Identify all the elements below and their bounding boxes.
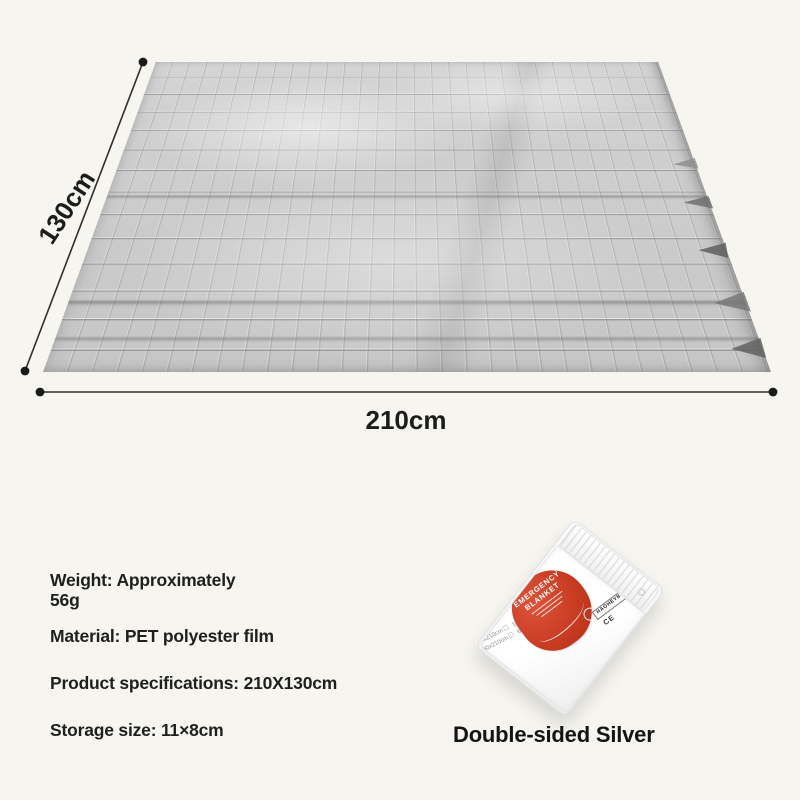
foil-blanket-photo: [43, 62, 771, 372]
spec-weight-line2: 56g: [50, 590, 235, 610]
product-image: 130cm 210cm Weight: Approximately 56g Ma…: [0, 0, 800, 800]
spec-product-size: Product specifications: 210X130cm: [50, 673, 337, 693]
spec-material: Material: PET polyester film: [50, 626, 274, 646]
spec-weight-line1: Weight: Approximately: [50, 570, 235, 590]
foil-crease: [671, 158, 698, 169]
blanket-photo-scene: [0, 0, 800, 460]
spec-weight: Weight: Approximately 56g: [50, 570, 235, 610]
foil-crease: [728, 338, 768, 358]
foil-crease: [696, 243, 731, 258]
spec-storage-size: Storage size: 11×8cm: [50, 720, 224, 740]
foil-crease: [678, 195, 713, 210]
variant-caption: Double-sided Silver: [453, 722, 655, 748]
packaged-product-photo: 140x210cm ☐ 160x210cm ☐ 150x210cm ☐ 60x2…: [474, 518, 665, 717]
foil-crease: [707, 291, 751, 312]
hang-hole-icon: [637, 587, 647, 597]
